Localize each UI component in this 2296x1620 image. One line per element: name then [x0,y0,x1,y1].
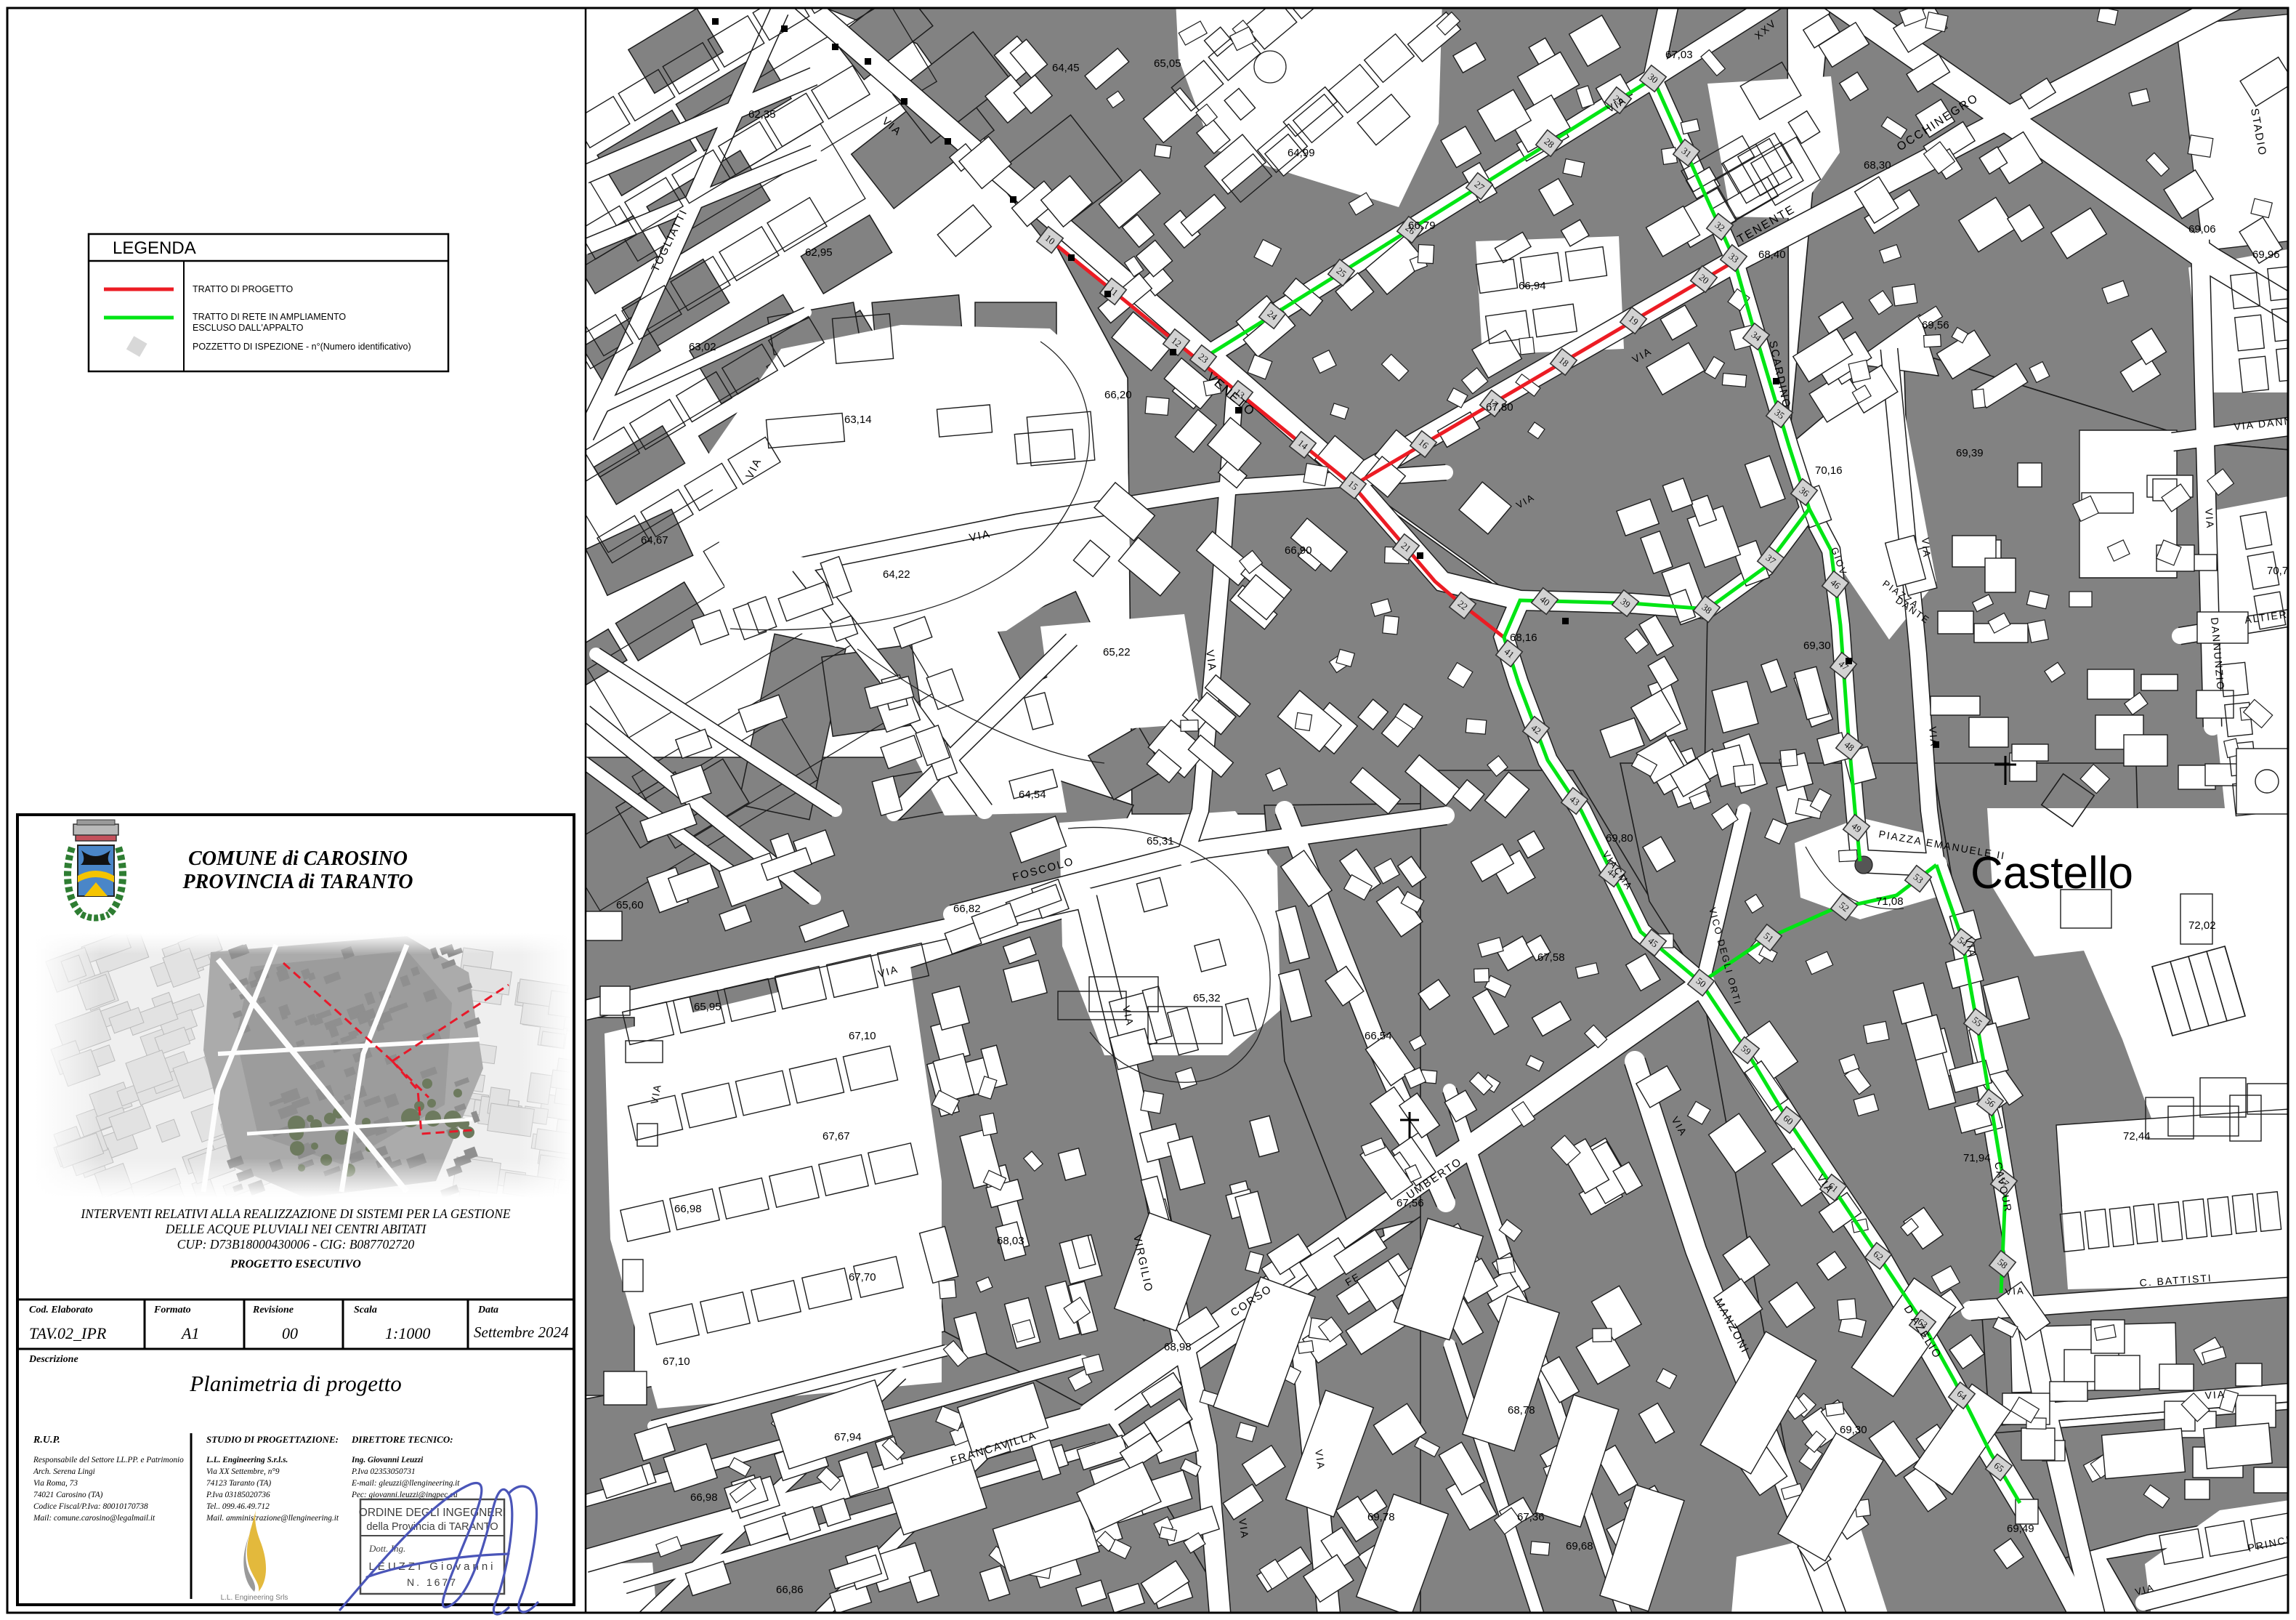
svg-text:69,30: 69,30 [1803,640,1831,652]
svg-text:COMUNE di CAROSINO: COMUNE di CAROSINO [188,847,408,870]
svg-text:62,95: 62,95 [805,246,833,259]
svg-text:CUP: D73B18000430006 - CIG: B0: CUP: D73B18000430006 - CIG: B087702720 [177,1237,415,1252]
svg-text:Arch. Serena Lingi: Arch. Serena Lingi [33,1467,95,1476]
svg-text:71,08: 71,08 [1876,895,1904,908]
svg-text:71,94: 71,94 [1963,1152,1991,1164]
svg-text:68,78: 68,78 [1508,1404,1535,1417]
svg-text:P.Iva 02353050731: P.Iva 02353050731 [351,1467,416,1476]
svg-text:L.L. Engineering Srls: L.L. Engineering Srls [221,1594,288,1602]
svg-text:Castello: Castello [1970,848,2133,898]
svg-text:64,54: 64,54 [1019,789,1046,801]
svg-text:64,99: 64,99 [1288,147,1315,159]
svg-text:65,31: 65,31 [1147,835,1174,847]
svg-text:69,30: 69,30 [1840,1424,1867,1436]
svg-text:INTERVENTI RELATIVI ALLA REALI: INTERVENTI RELATIVI ALLA REALIZZAZIONE D… [80,1206,510,1221]
svg-text:VIA: VIA [2204,1388,2226,1401]
svg-text:Formato: Formato [153,1305,191,1315]
svg-text:ORDINE DEGLI INGEGNERI: ORDINE DEGLI INGEGNERI [359,1507,506,1519]
svg-text:Cod. Elaborato: Cod. Elaborato [29,1305,93,1315]
svg-text:Mail: comune.carosino@legalmai: Mail: comune.carosino@legalmail.it [33,1514,155,1523]
svg-text:VIA: VIA [2005,1285,2025,1297]
svg-text:Data: Data [477,1305,498,1315]
svg-text:66,90: 66,90 [1285,544,1312,557]
svg-text:1:1000: 1:1000 [385,1324,430,1342]
svg-text:Planimetria di progetto: Planimetria di progetto [189,1371,402,1396]
svg-text:66,20: 66,20 [1104,389,1132,401]
svg-text:VIA: VIA [1927,726,1940,748]
svg-text:PROVINCIA di TARANTO: PROVINCIA di TARANTO [182,871,413,893]
svg-text:67,94: 67,94 [834,1431,862,1443]
svg-text:Scala: Scala [354,1305,377,1315]
svg-text:Pec: giovanni.leuzzi@ingpec.eu: Pec: giovanni.leuzzi@ingpec.eu [351,1491,458,1499]
svg-text:67,03: 67,03 [1665,49,1693,61]
svg-text:POZZETTO DI ISPEZIONE - n°(Num: POZZETTO DI ISPEZIONE - n°(Numero identi… [193,342,411,352]
svg-text:72,44: 72,44 [2123,1130,2151,1143]
svg-text:66,54: 66,54 [1365,1030,1392,1042]
svg-text:63,02: 63,02 [689,341,716,353]
svg-text:68,16: 68,16 [1510,632,1537,644]
svg-text:74123 Taranto (TA): 74123 Taranto (TA) [206,1479,271,1488]
svg-text:67,10: 67,10 [849,1030,876,1042]
svg-text:Mail. amministrazione@llengine: Mail. amministrazione@llengineering.it [206,1514,339,1523]
svg-text:62,35: 62,35 [748,108,776,121]
svg-text:67,67: 67,67 [822,1130,850,1143]
svg-text:70,16: 70,16 [1815,464,1843,477]
svg-text:VIA: VIA [1920,537,1933,559]
svg-text:Settembre 2024: Settembre 2024 [474,1323,569,1341]
svg-text:Dott. Ing.: Dott. Ing. [368,1543,405,1554]
svg-text:68,03: 68,03 [997,1235,1024,1247]
svg-text:67,56: 67,56 [1396,1197,1424,1209]
svg-text:DELLE ACQUE PLUVIALI NEI CENTR: DELLE ACQUE PLUVIALI NEI CENTRI ABITATI [165,1222,427,1236]
svg-text:Ing. Giovanni Leuzzi: Ing. Giovanni Leuzzi [351,1456,424,1464]
svg-text:Responsabile del Settore LL.PP: Responsabile del Settore LL.PP. e Patrim… [33,1456,184,1464]
svg-text:STUDIO DI PROGETTAZIONE:: STUDIO DI PROGETTAZIONE: [206,1434,339,1445]
svg-text:68,98: 68,98 [1164,1341,1192,1353]
svg-text:67,70: 67,70 [849,1271,876,1283]
svg-text:TAV.02_IPR: TAV.02_IPR [29,1324,107,1342]
svg-text:69,49: 69,49 [2007,1523,2034,1535]
svg-text:TRATTO DI RETE IN AMPLIAMENTO: TRATTO DI RETE IN AMPLIAMENTO [193,312,346,322]
svg-text:ESCLUSO DALL'APPALTO: ESCLUSO DALL'APPALTO [193,323,304,333]
svg-text:L.L. Engineering S.r.l.s.: L.L. Engineering S.r.l.s. [206,1456,288,1464]
svg-text:65,05: 65,05 [1154,57,1181,70]
svg-text:69,39: 69,39 [1956,447,1984,459]
svg-text:R.U.P.: R.U.P. [33,1435,60,1446]
svg-text:63,14: 63,14 [844,414,872,426]
svg-text:P.Iva 03185020736: P.Iva 03185020736 [206,1491,270,1499]
svg-text:69,78: 69,78 [1367,1511,1395,1523]
svg-text:66,94: 66,94 [1519,280,1546,292]
svg-text:Tel.. 099.46.49.712: Tel.. 099.46.49.712 [206,1502,270,1511]
svg-text:E-mail: gleuzzi@llengineering.: E-mail: gleuzzi@llengineering.it [351,1479,460,1488]
svg-text:66,79: 66,79 [1408,219,1436,232]
svg-text:LEGENDA: LEGENDA [113,238,196,258]
svg-text:Descrizione: Descrizione [28,1354,78,1365]
svg-text:64,22: 64,22 [883,568,910,581]
svg-text:A1: A1 [180,1324,199,1342]
svg-text:69,56: 69,56 [1922,319,1949,331]
svg-text:66,98: 66,98 [674,1203,702,1215]
svg-text:VIA: VIA [2203,508,2216,530]
svg-text:66,86: 66,86 [776,1584,804,1596]
svg-text:Codice Fiscal/P.Iva: 800101707: Codice Fiscal/P.Iva: 80010170738 [33,1502,148,1511]
svg-text:64,67: 64,67 [641,534,668,547]
svg-text:DIRETTORE TECNICO:: DIRETTORE TECNICO: [351,1434,453,1445]
svg-text:65,32: 65,32 [1193,992,1221,1004]
svg-text:67,58: 67,58 [1537,951,1565,964]
svg-text:72,02: 72,02 [2188,919,2216,932]
svg-text:66,82: 66,82 [953,903,981,915]
svg-text:65,95: 65,95 [694,1001,721,1013]
svg-text:Revisione: Revisione [252,1305,294,1315]
svg-text:65,60: 65,60 [616,899,644,911]
svg-text:66,98: 66,98 [690,1491,718,1504]
svg-text:68,40: 68,40 [1758,249,1786,261]
svg-text:74021 Carosino (TA): 74021 Carosino (TA) [33,1491,103,1499]
svg-text:Via XX Settembre, n°9: Via XX Settembre, n°9 [206,1467,280,1476]
svg-text:67,36: 67,36 [1517,1511,1545,1523]
svg-text:65,22: 65,22 [1103,646,1131,658]
svg-text:Via Roma, 73: Via Roma, 73 [33,1479,78,1488]
svg-text:67,80: 67,80 [1486,401,1513,414]
svg-text:00: 00 [282,1324,298,1342]
svg-text:69,06: 69,06 [2188,223,2216,235]
svg-text:69,68: 69,68 [1566,1540,1593,1552]
svg-text:69,80: 69,80 [1606,832,1633,845]
svg-text:68,30: 68,30 [1864,159,1891,172]
svg-text:67,10: 67,10 [663,1355,690,1368]
svg-text:64,45: 64,45 [1052,62,1080,74]
svg-text:PROGETTO ESECUTIVO: PROGETTO ESECUTIVO [230,1258,361,1270]
svg-text:TRATTO DI PROGETTO: TRATTO DI PROGETTO [193,284,293,294]
svg-text:della Provincia di TARANTO: della Provincia di TARANTO [366,1521,498,1533]
svg-text:69,96: 69,96 [2252,249,2280,261]
